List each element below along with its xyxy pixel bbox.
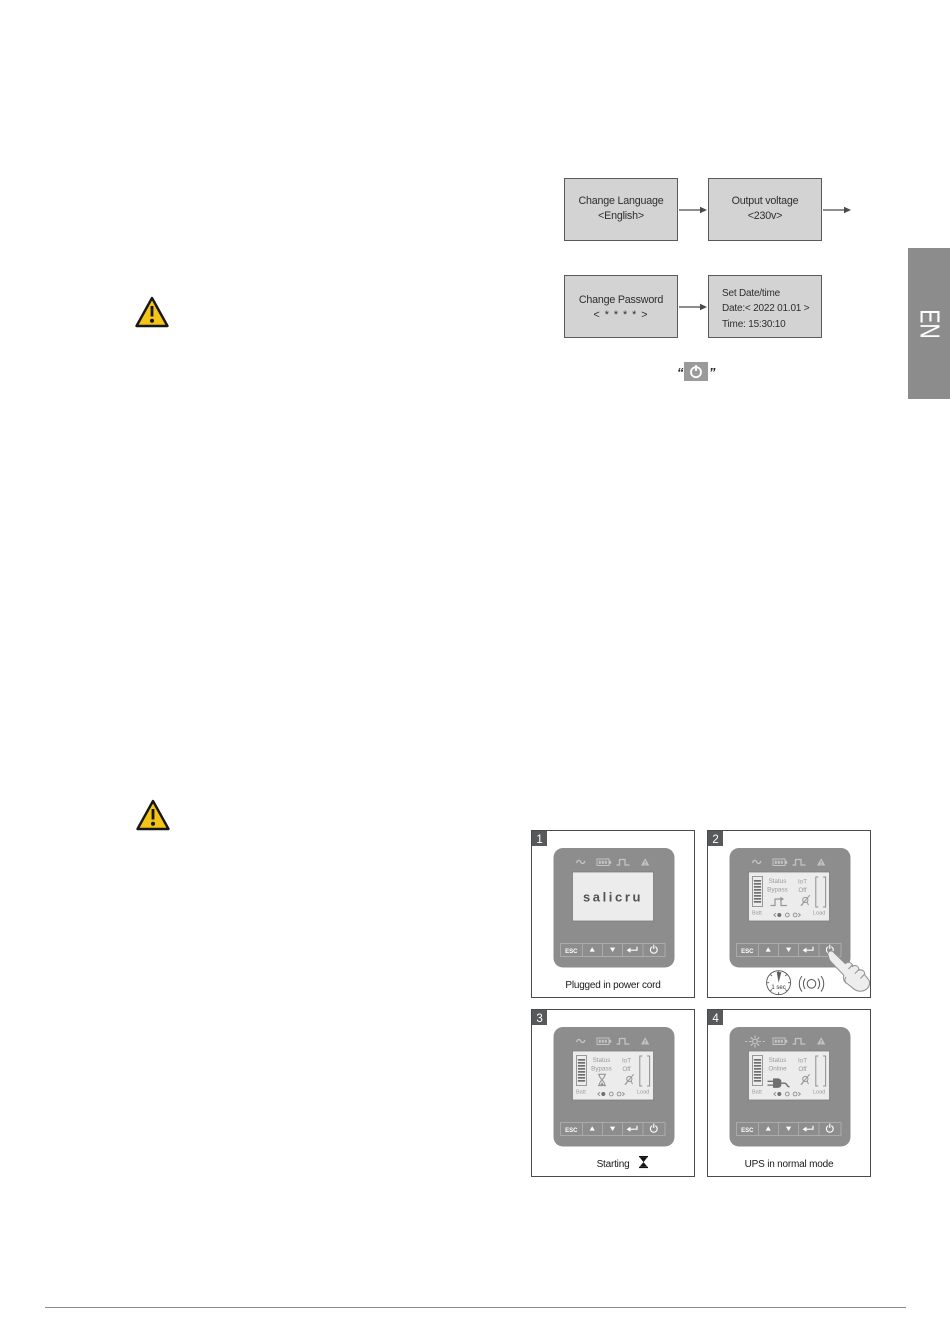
svg-text:Batt: Batt [752, 1090, 762, 1096]
svg-text:1: 1 [536, 834, 542, 846]
svg-text:Off: Off [622, 1066, 631, 1073]
svg-text:4: 4 [712, 1013, 719, 1025]
svg-text:Bypass: Bypass [591, 1066, 612, 1073]
svg-text:Off: Off [798, 1066, 807, 1073]
svg-text:2: 2 [712, 834, 718, 846]
svg-text:Load: Load [813, 1090, 825, 1096]
svg-text:ESC: ESC [741, 949, 754, 955]
svg-text:Starting: Starting [597, 1159, 630, 1170]
svg-text:Load: Load [637, 1090, 649, 1096]
svg-text:IoT: IoT [622, 1057, 631, 1064]
svg-text:UPS in normal mode: UPS in normal mode [745, 1159, 834, 1170]
svg-text:Status: Status [769, 1057, 787, 1064]
svg-text:Off: Off [798, 887, 807, 894]
svg-text:Load: Load [813, 911, 825, 917]
svg-text:Batt: Batt [576, 1090, 586, 1096]
svg-text:IoT: IoT [798, 1057, 807, 1064]
svg-text:ESC: ESC [741, 1128, 754, 1134]
svg-text:ESC: ESC [565, 949, 578, 955]
svg-text:1 sec: 1 sec [771, 985, 785, 991]
svg-text:salicru: salicru [583, 889, 643, 904]
svg-text:Online: Online [768, 1066, 787, 1073]
svg-text:IoT: IoT [798, 878, 807, 885]
svg-text:Status: Status [593, 1057, 611, 1064]
svg-text:Plugged in power cord: Plugged in power cord [565, 980, 660, 991]
svg-text:ESC: ESC [565, 1128, 578, 1134]
svg-text:Status: Status [769, 878, 787, 885]
svg-text:Bypass: Bypass [767, 887, 788, 894]
svg-text:3: 3 [536, 1013, 542, 1025]
svg-text:Batt: Batt [752, 911, 762, 917]
